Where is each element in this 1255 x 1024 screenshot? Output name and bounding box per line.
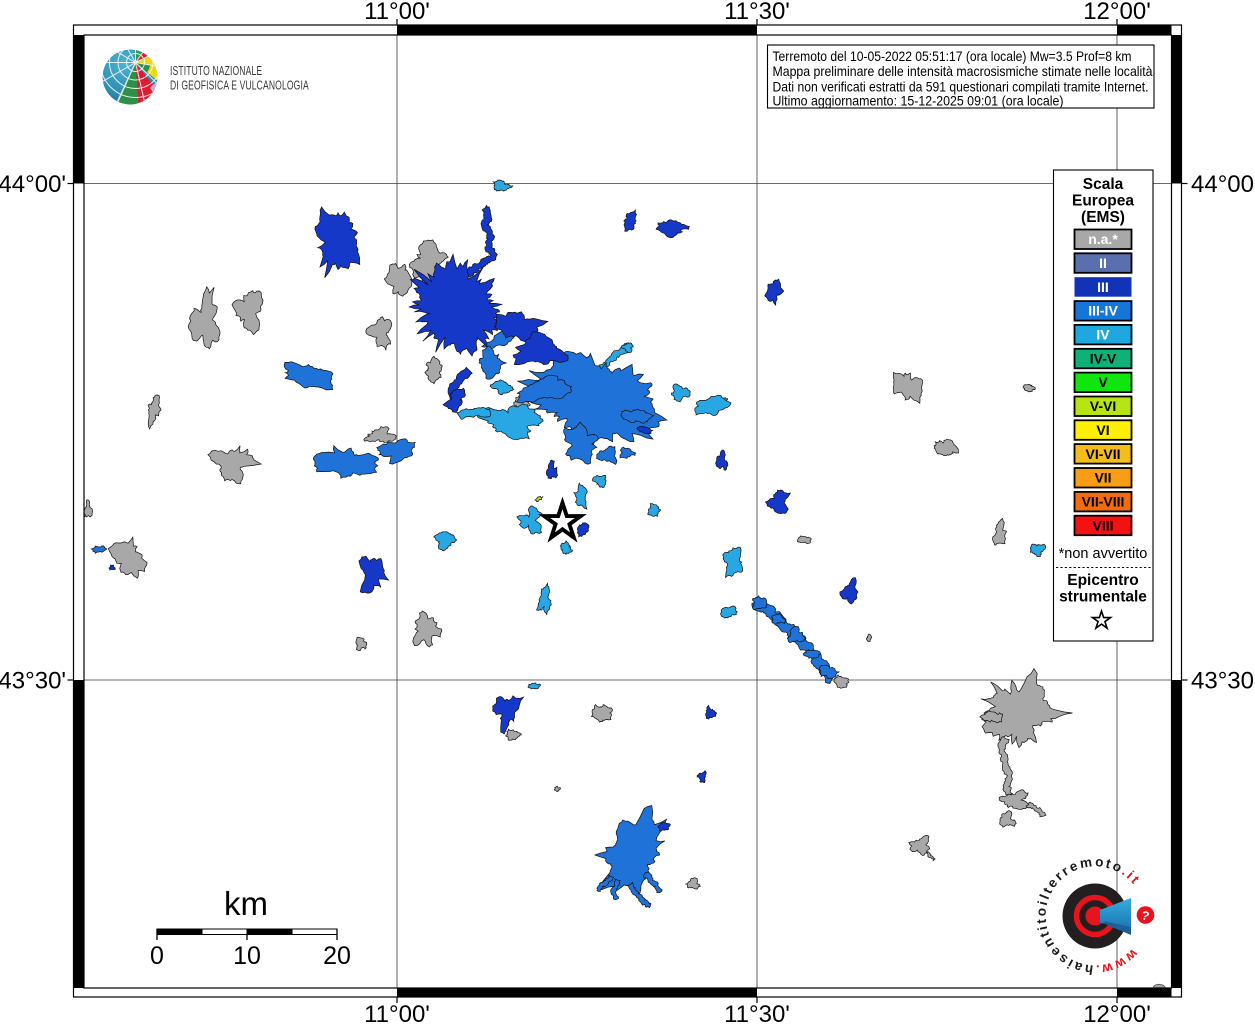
svg-text:IV: IV [1096,327,1110,343]
svg-text:11°00': 11°00' [364,0,430,25]
svg-text:12°00': 12°00' [1083,0,1151,25]
svg-text:Terremoto del 10-05-2022 05:51: Terremoto del 10-05-2022 05:51:17 (ora l… [773,48,1132,64]
svg-text:ISTITUTO NAZIONALE: ISTITUTO NAZIONALE [170,65,262,79]
svg-text:VI: VI [1096,422,1109,438]
svg-text:II: II [1099,255,1107,271]
svg-text:12°00': 12°00' [1083,1001,1151,1024]
svg-text:Epicentro: Epicentro [1067,572,1138,589]
svg-text:strumentale: strumentale [1059,589,1147,606]
svg-text:VI-VII: VI-VII [1085,446,1120,462]
svg-text:III-IV: III-IV [1088,303,1118,319]
svg-text:V: V [1098,374,1108,390]
svg-text:VIII: VIII [1092,517,1113,533]
svg-text:0: 0 [150,942,164,970]
svg-text:Ultimo aggiornamento: 15-12-20: Ultimo aggiornamento: 15-12-2025 09:01 (… [773,93,1064,109]
svg-text:43°30': 43°30' [1191,668,1255,695]
svg-text:Europea: Europea [1072,193,1134,210]
svg-text:20: 20 [323,942,351,970]
svg-text:Scala: Scala [1083,176,1124,193]
svg-text:*non avvertito: *non avvertito [1059,546,1148,562]
svg-text:n.a.*: n.a.* [1088,231,1118,247]
svg-text:10: 10 [233,942,261,970]
svg-text:km: km [224,885,268,922]
svg-text:11°00': 11°00' [364,1001,430,1024]
svg-text:43°30': 43°30' [0,668,66,695]
svg-text:V-VI: V-VI [1090,398,1116,414]
svg-text:VII-VIII: VII-VIII [1082,494,1125,510]
svg-text:44°00': 44°00' [1191,171,1255,198]
svg-text:44°00': 44°00' [0,171,66,198]
svg-text:III: III [1097,279,1109,295]
svg-text:11°30': 11°30' [724,1001,790,1024]
svg-text:VII: VII [1094,470,1111,486]
svg-text:11°30': 11°30' [724,0,790,25]
svg-text:(EMS): (EMS) [1081,209,1125,226]
svg-text:Mappa preliminare delle intens: Mappa preliminare delle intensità macros… [773,63,1153,79]
svg-text:DI GEOFISICA E VULCANOLOGIA: DI GEOFISICA E VULCANOLOGIA [170,79,309,93]
svg-text:IV-V: IV-V [1090,350,1117,366]
